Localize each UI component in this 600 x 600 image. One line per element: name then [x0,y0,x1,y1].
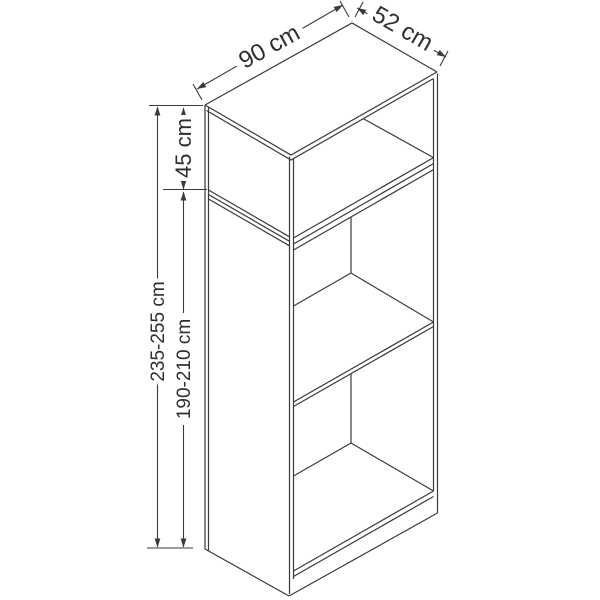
depth-label: 52 cm [367,1,437,57]
extension-ticks [193,1,448,100]
dimension-annotations: 235-255 cm 45 cm 190-210 [146,0,449,548]
arrow-down-icon [155,539,161,548]
dimension-upper-cabinet-height: 45 cm [171,108,197,190]
lower-height-label: 190-210 cm [174,319,195,419]
left-side-panel-edges [205,105,289,596]
arrow-down-left-icon [197,82,206,89]
base-front-edge [289,513,438,596]
arrow-down-right-icon [437,50,446,57]
dimension-depth: 52 cm [357,0,446,59]
arrow-down-icon [181,539,187,548]
arrow-up-right-icon [334,5,343,12]
bottom-panel-edges [294,374,434,577]
dimension-width: 90 cm [197,5,343,89]
dimension-lower-cabinet-height: 190-210 cm [172,192,196,548]
drawing-canvas: 235-255 cm 45 cm 190-210 [0,0,600,600]
arrow-down-icon [181,181,187,190]
middle-shelf-edges [294,217,434,407]
upper-lower-separation-band [209,158,434,250]
upper-height-label: 45 cm [171,118,196,178]
wardrobe-drawing [205,23,438,596]
right-side-edges [434,74,438,514]
upper-cabinet-floor-edge [363,119,434,158]
overall-height-label: 235-255 cm [148,281,169,381]
width-label: 90 cm [234,19,304,74]
arrow-up-icon [181,192,187,201]
front-left-stile-edges [290,157,294,595]
dimension-overall-height: 235-255 cm [146,107,170,548]
arrow-up-icon [155,107,161,116]
wardrobe-dimension-diagram: 235-255 cm 45 cm 190-210 [0,0,600,600]
